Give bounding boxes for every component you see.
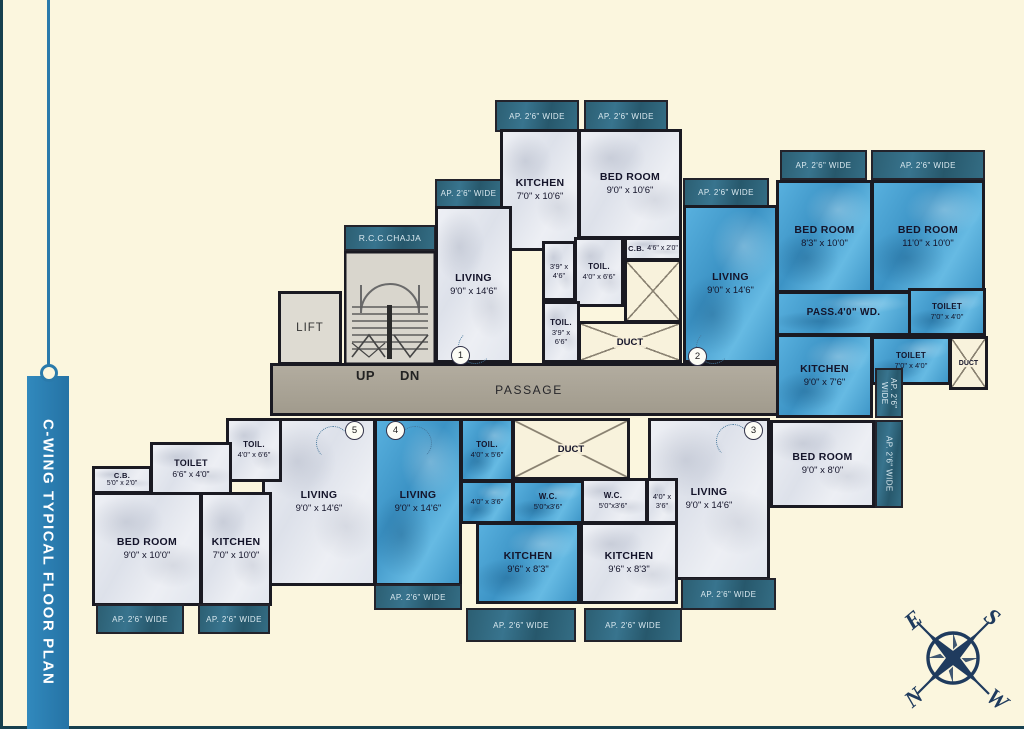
room-dims: 7'0" x 10'0" (213, 550, 260, 562)
duct-center: DUCT (512, 418, 630, 480)
balcony-strip: AP. 2'6" WIDE (198, 604, 270, 634)
balcony-strip: AP. 2'6" WIDE (871, 150, 985, 180)
room-dims: 9'0" x 10'6" (607, 185, 654, 197)
room-name: LIVING (455, 272, 492, 285)
room-f5-toil: TOIL. 4'0" x 6'6" (226, 418, 282, 482)
room-dims: 4'6" x 2'0" (647, 245, 678, 254)
balcony-strip: AP. 2'6" WIDE (495, 100, 579, 132)
cupboard-f1: C.B. 4'6" x 2'0" (624, 237, 682, 261)
balcony-strip: AP. 2'6" WIDE (466, 608, 576, 642)
unit-number-3: 3 (744, 421, 763, 440)
room-name: W.C. (539, 492, 558, 502)
room-dims: 9'0" x 14'6" (395, 503, 442, 515)
room-dims: 9'0" x 10'0" (124, 550, 171, 562)
room-name: BED ROOM (898, 224, 958, 237)
room-name: TOILET (174, 458, 208, 469)
room-name: BED ROOM (117, 536, 177, 549)
passage: PASSAGE (270, 363, 788, 416)
room-dims: 6'6" x 4'0" (172, 469, 209, 480)
room-dims: 4'0" x 6'6" (583, 272, 616, 281)
unit-number-4: 4 (386, 421, 405, 440)
room-dims: 9'6" x 8'3" (507, 564, 549, 576)
room-dims: 4'0" x 3'6" (471, 497, 504, 506)
room-dims: 9'0" x 14'6" (296, 503, 343, 515)
lift: LIFT (278, 291, 342, 365)
room-f2-bedroom-b: BED ROOM 11'0" x 10'0" (871, 180, 985, 293)
room-f2-bedroom-a: BED ROOM 8'3" x 10'0" (776, 180, 873, 293)
room-dims: 4'0" x 3'6" (649, 492, 675, 511)
cupboard-f5: C.B. 5'0" x 2'0" (92, 466, 152, 494)
room-name: TOILET (932, 302, 962, 312)
left-border (0, 0, 3, 729)
room-dims: 7'0" x 10'6" (517, 191, 564, 203)
room-name: KITCHEN (504, 550, 553, 563)
room-dims: 9'0" x 14'6" (450, 286, 497, 298)
room-f4-toilet: TOIL. 4'0" x 5'6" (460, 418, 514, 482)
unit-number-5: 5 (345, 421, 364, 440)
duct-label: DUCT (614, 337, 646, 348)
room-f4-kitchen: KITCHEN 9'6" x 8'3" (476, 522, 580, 604)
shaft-f4: 4'0" x 3'6" (460, 480, 514, 524)
unit-number-2: 2 (688, 347, 707, 366)
room-name: TOIL. (243, 440, 265, 450)
room-dims: 9'0" x 14'6" (686, 500, 733, 512)
duct-f2: DUCT (949, 336, 988, 390)
balcony-strip: AP. 2'6" WIDE (584, 100, 668, 132)
room-name: BED ROOM (600, 171, 660, 184)
room-name: BED ROOM (794, 224, 854, 237)
title-pin-line (47, 0, 50, 370)
room-dims: 4'0" x 6'6" (238, 450, 271, 459)
balcony-strip: AP. 2'6" WIDE (374, 584, 462, 610)
balcony-strip: AP. 2'6" WIDE (683, 178, 769, 207)
room-dims: 8'3" x 10'0" (801, 238, 848, 250)
duct-f1-upper (624, 259, 682, 323)
room-name: KITCHEN (800, 363, 849, 376)
room-name: KITCHEN (212, 536, 261, 549)
balcony-strip: AP. 2'6" WIDE (780, 150, 867, 180)
room-dims: 5'0" x 2'0" (107, 480, 138, 489)
room-f3-bedroom: BED ROOM 9'0" x 8'0" (770, 420, 875, 508)
room-name: LIVING (301, 489, 338, 502)
rcc-chajja-strip: R.C.C.CHAJJA (344, 225, 436, 251)
room-name: LIVING (712, 271, 749, 284)
room-name: C.B. (628, 244, 644, 253)
room-dims: 9'0" x 8'0" (802, 465, 844, 477)
room-dims: 9'6" x 8'3" (608, 564, 650, 576)
staircase (344, 251, 436, 365)
stairs-dn-label: DN (400, 368, 420, 383)
duct-label: DUCT (956, 360, 981, 367)
room-f1-toilet-a: TOIL. 4'0" x 6'6" (574, 237, 624, 307)
room-f5-kitchen: KITCHEN 7'0" x 10'0" (200, 492, 272, 606)
shaft-f1: 3'9" x 4'6" (542, 241, 576, 301)
room-name: LIVING (691, 486, 728, 499)
room-dims: 5'0"x3'6" (599, 501, 628, 510)
unit-number-1: 1 (451, 346, 470, 365)
passage-f2: PASS.4'0" WD. (776, 291, 911, 336)
room-dims: 9'0" x 14'6" (707, 285, 754, 297)
balcony-strip: AP. 2'6" WIDE (435, 179, 502, 208)
room-f3-wc: W.C. 5'0"x3'6" (578, 478, 648, 524)
room-name: W.C. (604, 491, 623, 501)
room-dims: 7'0" x 4'0" (931, 312, 964, 321)
compass-east: E (899, 605, 928, 635)
plan-title-ribbon: C-WING TYPICAL FLOOR PLAN (27, 376, 69, 729)
room-dims: 4'0" x 5'6" (471, 450, 504, 459)
duct-label: DUCT (555, 444, 587, 455)
duct-f1: DUCT (578, 321, 682, 363)
room-name: KITCHEN (516, 177, 565, 190)
room-dims: 3'9" x 4'6" (545, 262, 573, 281)
compass-west: W (981, 683, 1013, 716)
balcony-strip: AP. 2'6" WIDE (681, 578, 776, 610)
room-dims: 3'9" x 6'6" (545, 328, 577, 347)
room-f1-bedroom: BED ROOM 9'0" x 10'6" (578, 129, 682, 239)
balcony-strip: AP. 2'6" WIDE (96, 604, 184, 634)
room-name: KITCHEN (605, 550, 654, 563)
room-dims: 11'0" x 10'0" (902, 238, 953, 250)
room-f1-toilet-b: TOIL. 3'9" x 6'6" (542, 301, 580, 363)
room-name: BED ROOM (792, 451, 852, 464)
balcony-strip: AP. 2'6" WIDE (584, 608, 682, 642)
room-name: TOILET (896, 351, 926, 361)
room-f5-bedroom: BED ROOM 9'0" x 10'0" (92, 492, 202, 606)
balcony-strip: AP. 2'6" WIDE (875, 420, 903, 508)
stairs-up-label: UP (356, 368, 375, 383)
room-f5-toilet: TOILET 6'6" x 4'0" (150, 442, 232, 496)
room-f3-kitchen: KITCHEN 9'6" x 8'3" (580, 522, 678, 604)
room-dims: 5'0"x3'6" (534, 502, 563, 511)
room-name: PASS.4'0" WD. (807, 307, 881, 320)
floor-plan-canvas: C-WING TYPICAL FLOOR PLAN R.C.C.CHAJJA L… (0, 0, 1024, 729)
room-name: C.B. (114, 471, 130, 480)
room-name: TOIL. (550, 318, 572, 328)
room-name: TOIL. (476, 440, 498, 450)
shaft-f3: 4'0" x 3'6" (646, 478, 678, 524)
balcony-strip: AP. 2'6" WIDE (875, 368, 903, 418)
room-f4-wc: W.C. 5'0"x3'6" (512, 480, 584, 524)
room-f1-kitchen: KITCHEN 7'0" x 10'6" (500, 129, 580, 251)
room-f2-kitchen: KITCHEN 9'0" x 7'6" (776, 334, 873, 418)
room-name: TOIL. (588, 262, 610, 272)
room-dims: 9'0" x 7'6" (804, 377, 846, 389)
room-f2-toilet-a: TOILET 7'0" x 4'0" (908, 288, 986, 336)
compass-rose: E S N W (893, 592, 1013, 722)
room-name: LIVING (400, 489, 437, 502)
title-pin-dot (40, 364, 58, 382)
